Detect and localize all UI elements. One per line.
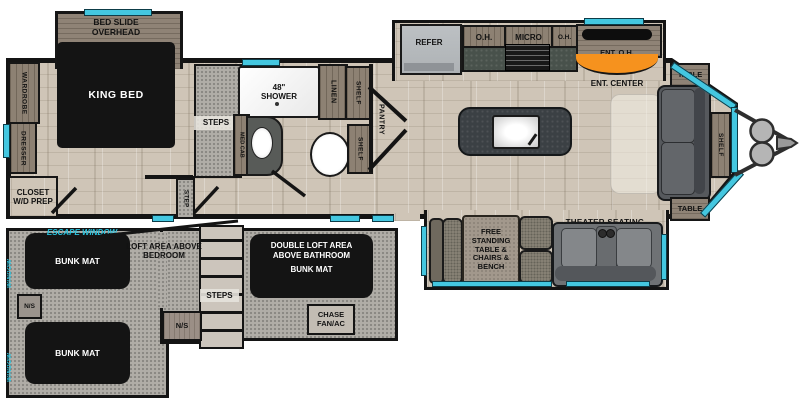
escape-window-label-text: ESCAPE WINDOW [47,228,117,237]
hitch-frame-lower [735,146,790,175]
double-loft-label-text: DOUBLE LOFT AREA ABOVE BATHROOM [266,241,358,260]
bunk-mat-bottom-label: BUNK MAT [55,348,101,358]
front-shelf-label: SHELF [717,133,724,157]
refrigerator: REFER [400,24,462,75]
nightstand-left: N/S [17,294,42,319]
bottom-window-mid [330,215,360,222]
free-standing-table: FREE STANDING TABLE & CHAIRS & BENCH [462,215,520,285]
front-sofa-back [694,88,705,194]
bed-slide-label: BED SLIDE OVERHEAD [78,17,154,37]
bedroom-steps-label: STEPS [194,116,238,130]
closet-label: CLOSET W/D PREP [13,188,53,207]
closet-wd-prep: CLOSET W/D PREP [8,176,58,218]
bedroom-steps-label-text: STEPS [203,118,229,127]
area-rug [610,94,662,194]
bunk-mat-bottom: BUNK MAT [25,322,130,384]
free-standing-label: FREE STANDING TABLE & CHAIRS & BENCH [467,228,515,272]
bottom-window-door-side [372,215,394,222]
entry-step-label: STEP [183,190,189,208]
wardrobe: WARDROBE [8,62,40,124]
theater-seating [552,222,663,287]
linen-cabinet: LINEN [318,64,348,120]
oh-right-label: O.H. [558,34,571,42]
loft-steps-label-text: STEPS [206,291,232,300]
ent-overhead: ENT. O.H. [576,24,662,58]
pantry-label: PANTRY [378,104,385,135]
dresser-label: DRESSER [20,131,27,166]
bed-slide-label-text: BED SLIDE OVERHEAD [92,17,140,37]
theater-backrest [555,266,656,281]
shelf-bottom-label: SHELF [357,137,364,161]
double-loft-bunk-label-text: BUNK MAT [290,265,332,274]
shelf-top-label: SHELF [355,81,362,105]
double-loft-label: DOUBLE LOFT AREA ABOVE BATHROOM [250,241,373,260]
micro-label: MICRO [515,33,542,42]
loft-area-label-text: LOFT AREA ABOVE BEDROOM [126,242,202,260]
double-loft: DOUBLE LOFT AREA ABOVE BATHROOM BUNK MAT [250,234,373,298]
king-bed-label: KING BED [88,89,143,102]
front-sofa-cushion-bottom [661,142,695,195]
ent-slide-window [584,18,644,25]
dresser: DRESSER [9,122,37,174]
loft-window-label-bottom: WINDOW [7,327,19,382]
oh-left-label: O.H. [476,33,492,42]
front-sofa [657,85,711,201]
linen-label: LINEN [330,80,337,104]
bedroom-side-window [3,124,10,158]
bunk-mat-top: BUNK MAT [25,233,130,289]
hitch-frame-upper [735,110,790,141]
bed-slide-window [84,9,152,16]
front-window-right [731,107,738,173]
shower: 48" SHOWER [238,66,320,118]
med-cab-label: MED CAB [239,132,245,158]
cooktop [505,44,550,71]
theater-seat-left [561,228,597,268]
loft-window-label-top: WINDOW [7,240,19,288]
entry-door-opening [394,213,420,221]
front-shelf: SHELF [710,112,731,178]
slide-window-bottom-right [566,281,650,287]
cup-holder-right [606,229,615,238]
propane-tank-bottom [751,143,774,166]
ent-center-label: ENT. CENTER [570,73,664,92]
king-bed: KING BED [57,42,175,148]
shower-drain [275,102,279,106]
slide-window-left [421,226,427,276]
chase-fan-ac-label: CHASE FAN/AC [311,311,351,329]
pantry: PANTRY [373,88,389,150]
loft-window-label-bottom-text: WINDOW [7,353,13,382]
slide-window-bottom-left [432,281,552,287]
escape-window [152,215,174,222]
escape-window-label: ESCAPE WINDOW [26,228,138,237]
propane-tank-top [751,120,774,143]
shelf-top: SHELF [345,66,371,120]
double-loft-bunk-label: BUNK MAT [250,265,373,275]
entry-step: STEP [176,178,195,219]
bunk-mat-top-label: BUNK MAT [55,256,101,266]
ent-center-label-text: ENT. CENTER [591,79,643,88]
tv-icon [582,29,652,40]
bath-top-window [242,59,280,66]
front-sofa-cushion-top [661,89,695,143]
loft-area-label: LOFT AREA ABOVE BEDROOM [126,242,202,261]
nightstand-right-label: N/S [176,322,189,331]
nightstand-left-label: N/S [24,303,35,311]
shower-label: 48" SHOWER [256,83,302,102]
loft-window-label-top-text: WINDOW [7,259,13,288]
loft-steps-label: STEPS [200,289,239,302]
nightstand-right: N/S [162,311,202,341]
rv-floor-plan: BED SLIDE OVERHEAD KING BED WARDROBE DRE… [0,0,800,400]
chase-fan-ac: CHASE FAN/AC [307,304,355,335]
front-table-bottom-label: TABLE [678,205,702,214]
loft-ladder [199,225,244,349]
bench-seat [442,218,463,284]
toilet [310,132,350,177]
hitch-coupler [777,137,797,149]
island-sink [492,115,540,149]
refer-label: REFER [402,38,456,47]
dining-chair-1 [519,216,553,250]
bath-sink [251,127,273,159]
theater-seat-right [616,228,652,268]
refrigerator-handle [404,63,454,71]
dining-chair-2 [519,250,553,284]
slide-window-right [661,234,667,280]
wardrobe-label: WARDROBE [21,72,28,115]
refer-label-text: REFER [415,38,442,47]
